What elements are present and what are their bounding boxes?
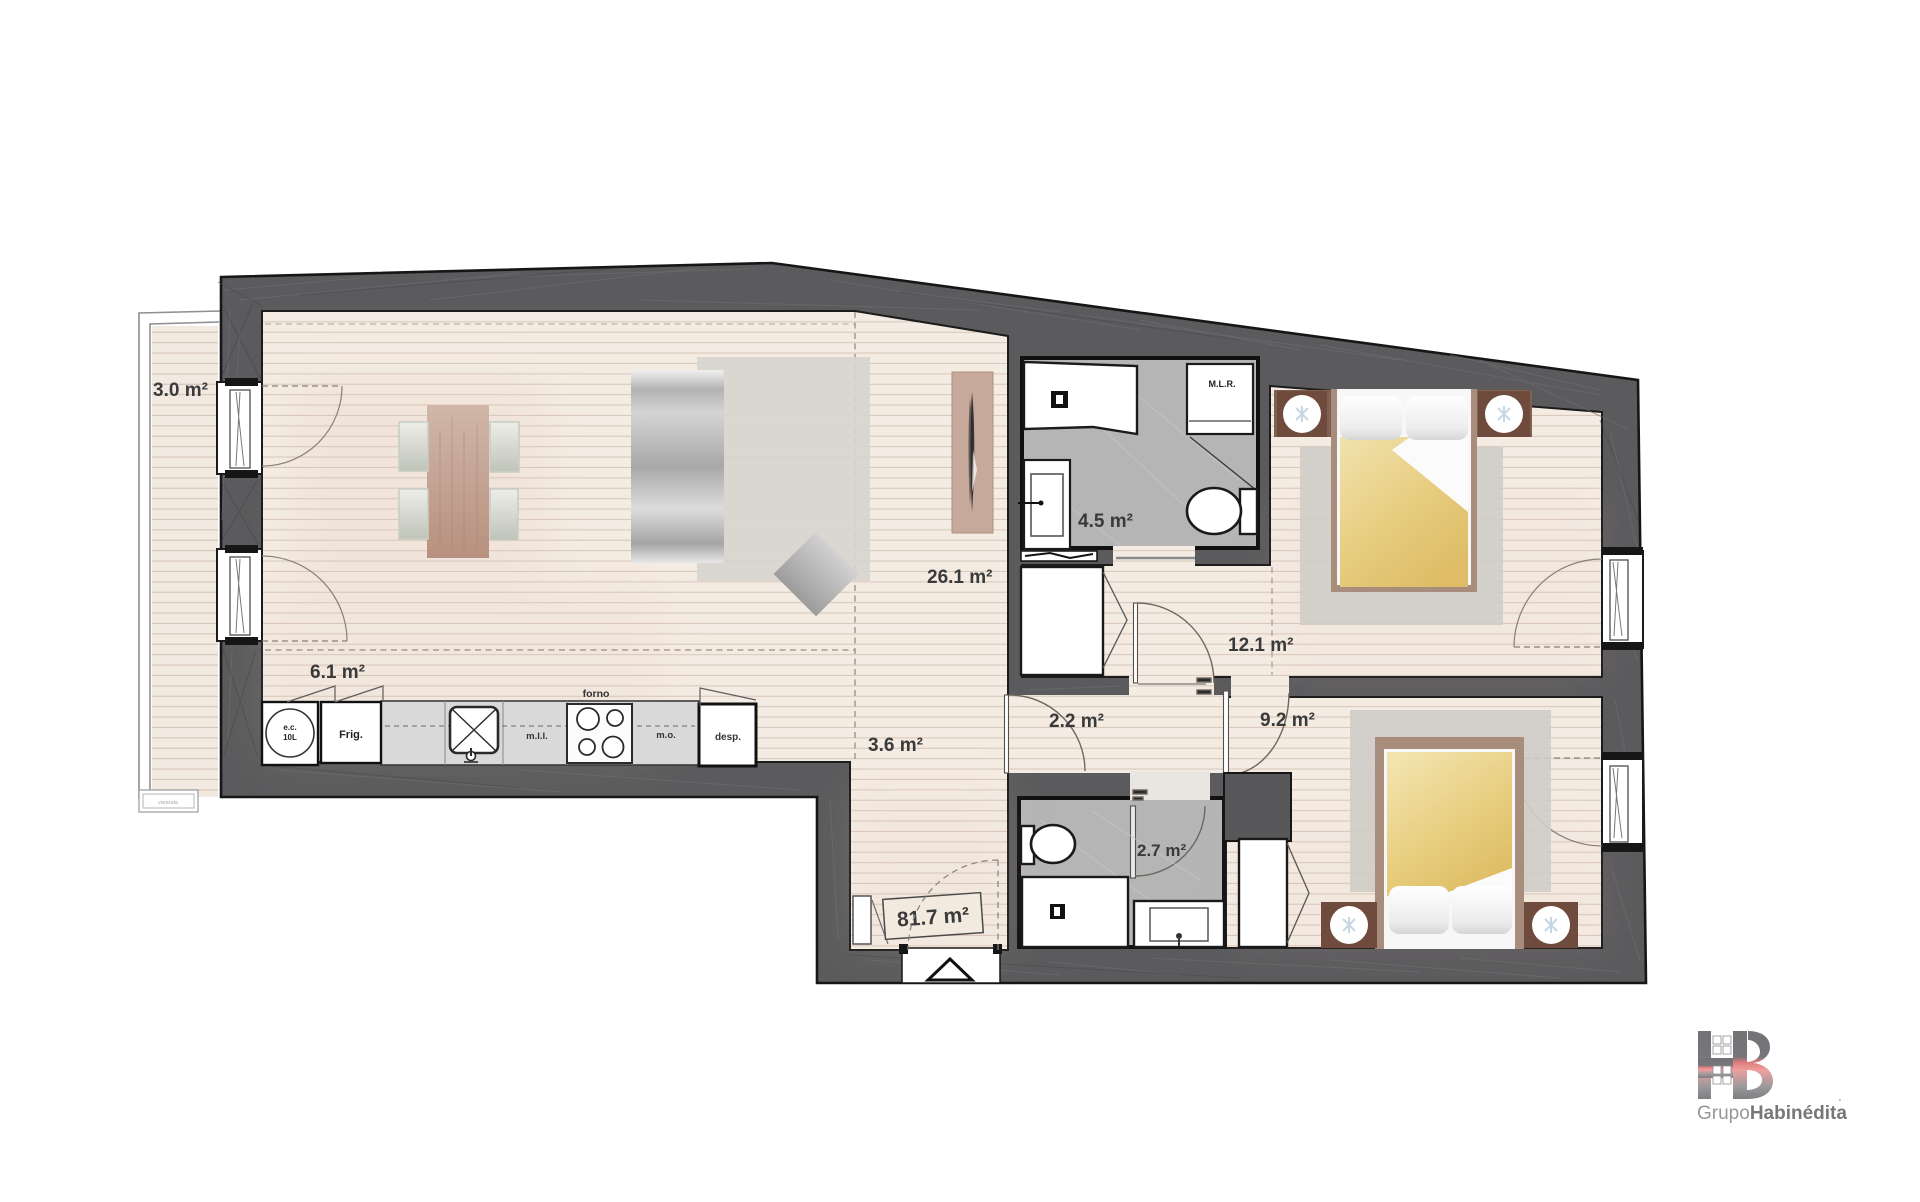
svg-text:12.1 m²: 12.1 m²	[1228, 635, 1293, 656]
svg-text:M.L.R.: M.L.R.	[1209, 379, 1236, 389]
svg-text:6.1 m²: 6.1 m²	[310, 662, 365, 683]
svg-text:': '	[1839, 1098, 1841, 1109]
svg-text:2.7 m²: 2.7 m²	[1137, 841, 1186, 860]
svg-text:26.1 m²: 26.1 m²	[927, 567, 992, 588]
svg-text:varanda: varanda	[158, 800, 179, 806]
svg-text:forno: forno	[583, 688, 610, 700]
svg-text:3.6 m²: 3.6 m²	[868, 735, 923, 756]
svg-text:m.l.l.: m.l.l.	[526, 731, 548, 742]
svg-text:desp.: desp.	[715, 732, 741, 743]
svg-text:e.c.: e.c.	[283, 723, 296, 732]
svg-text:2.2 m²: 2.2 m²	[1049, 711, 1104, 732]
svg-text:Frig.: Frig.	[339, 729, 363, 741]
svg-text:10L: 10L	[283, 733, 297, 742]
svg-text:9.2 m²: 9.2 m²	[1260, 710, 1315, 731]
svg-text:4.5 m²: 4.5 m²	[1078, 511, 1133, 532]
svg-text:3.0 m²: 3.0 m²	[153, 380, 208, 401]
svg-text:m.o.: m.o.	[656, 730, 676, 741]
svg-text:GrupoHabinédita: GrupoHabinédita	[1697, 1103, 1847, 1124]
